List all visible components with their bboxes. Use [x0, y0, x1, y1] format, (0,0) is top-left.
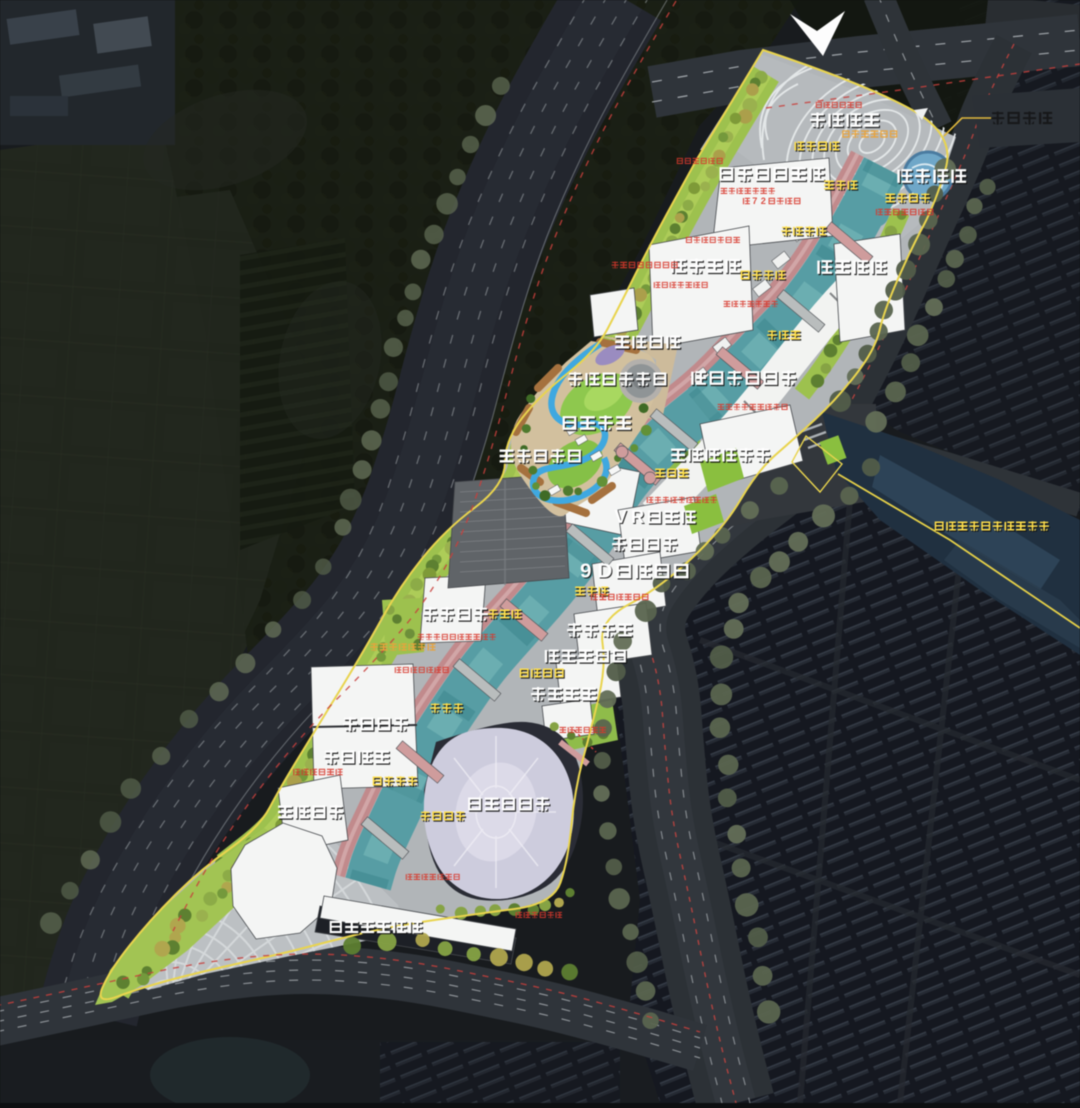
svg-text:R: R	[631, 506, 644, 527]
svg-text:2: 2	[761, 196, 766, 206]
svg-text:9: 9	[580, 560, 592, 583]
svg-text:7: 7	[752, 196, 757, 206]
svg-text:D: D	[597, 560, 612, 583]
svg-text:V: V	[614, 506, 627, 527]
